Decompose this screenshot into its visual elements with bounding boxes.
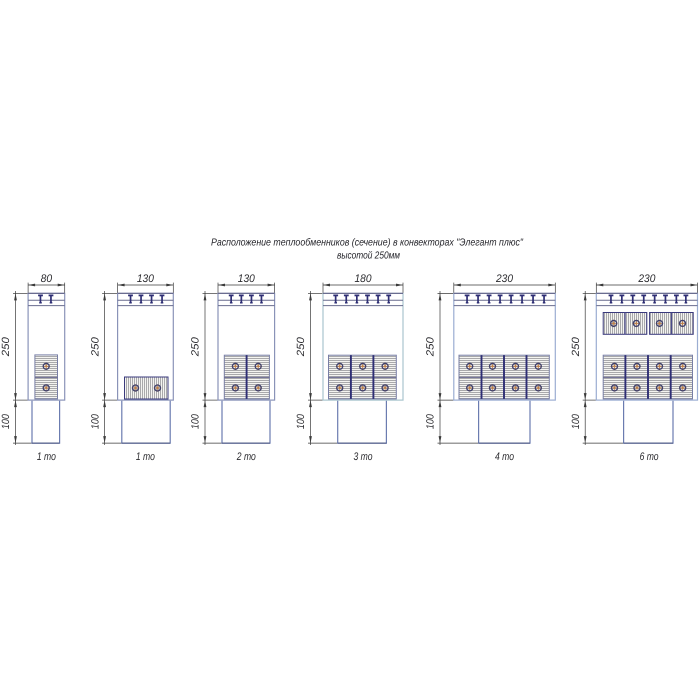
svg-text:100: 100: [295, 414, 307, 429]
svg-text:100: 100: [570, 414, 582, 429]
svg-text:180: 180: [355, 273, 373, 285]
svg-text:250: 250: [295, 337, 307, 357]
svg-text:130: 130: [238, 273, 256, 285]
svg-text:2 то: 2 то: [236, 451, 256, 463]
svg-text:250: 250: [190, 337, 202, 357]
svg-text:230: 230: [495, 273, 514, 285]
svg-text:80: 80: [41, 273, 53, 285]
svg-text:250: 250: [425, 337, 437, 357]
svg-text:250: 250: [89, 337, 101, 357]
svg-text:высотой 250мм: высотой 250мм: [337, 251, 400, 262]
svg-text:3 то: 3 то: [354, 451, 373, 463]
svg-text:100: 100: [89, 414, 101, 429]
svg-text:100: 100: [425, 414, 437, 429]
svg-text:130: 130: [137, 273, 155, 285]
svg-text:250: 250: [570, 337, 582, 357]
svg-text:4 то: 4 то: [495, 451, 514, 463]
svg-text:100: 100: [0, 414, 12, 429]
svg-text:100: 100: [190, 414, 202, 429]
svg-text:Расположение теплообменников (: Расположение теплообменников (сечение) в…: [211, 237, 523, 248]
svg-text:1 то: 1 то: [37, 451, 56, 463]
svg-text:250: 250: [0, 337, 12, 357]
svg-text:6 то: 6 то: [640, 451, 659, 463]
svg-text:1 то: 1 то: [136, 451, 155, 463]
svg-text:230: 230: [637, 273, 656, 285]
